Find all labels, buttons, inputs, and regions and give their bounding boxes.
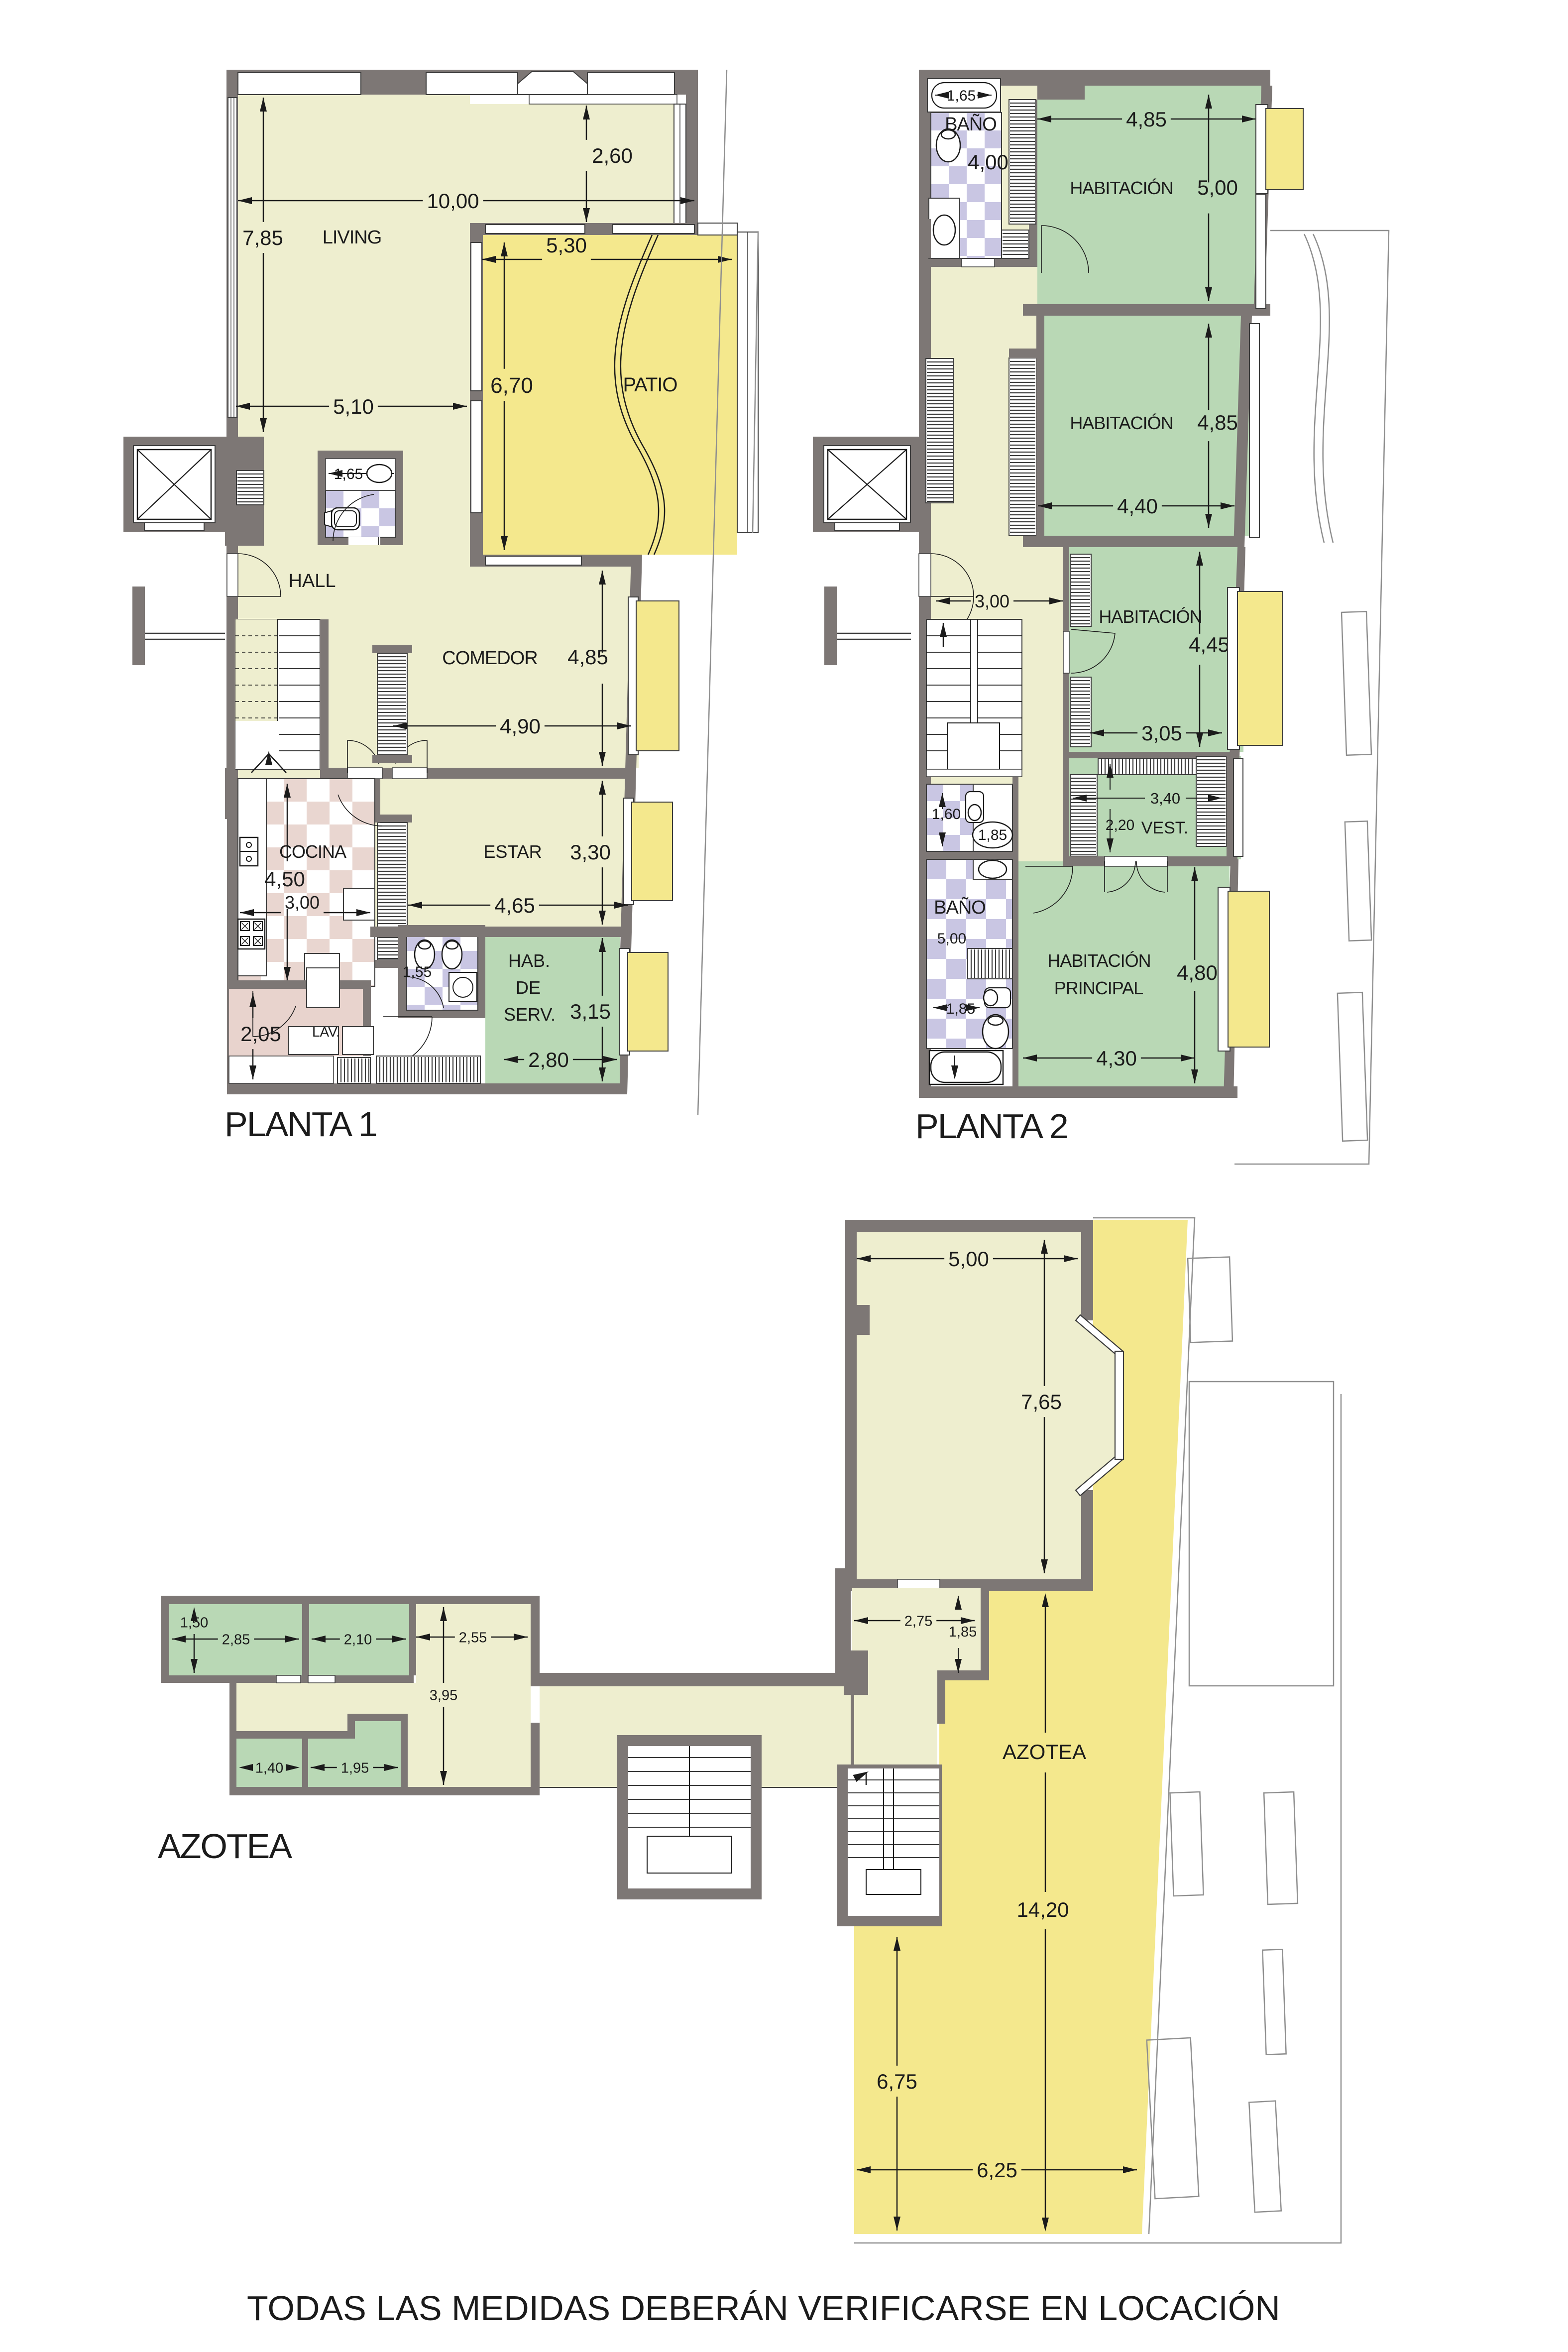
svg-text:10,00: 10,00 [427, 189, 479, 213]
svg-text:3,95: 3,95 [430, 1687, 457, 1703]
svg-text:COMEDOR: COMEDOR [442, 648, 537, 669]
svg-text:1,60: 1,60 [932, 806, 961, 823]
svg-text:2,55: 2,55 [459, 1630, 487, 1646]
svg-text:VEST.: VEST. [1141, 819, 1188, 837]
svg-text:3,00: 3,00 [285, 892, 320, 913]
svg-text:2,85: 2,85 [222, 1632, 250, 1647]
svg-text:1,50: 1,50 [180, 1615, 208, 1631]
svg-text:4,85: 4,85 [1197, 411, 1238, 434]
svg-text:4,80: 4,80 [1177, 961, 1218, 984]
svg-text:HAB.: HAB. [508, 950, 550, 971]
svg-text:AZOTEA: AZOTEA [158, 1827, 292, 1866]
svg-text:PLANTA 2: PLANTA 2 [915, 1107, 1068, 1146]
svg-text:BAÑO: BAÑO [945, 114, 997, 135]
svg-text:TODAS LAS MEDIDAS DEBERÁN VERI: TODAS LAS MEDIDAS DEBERÁN VERIFICARSE EN… [247, 2289, 1280, 2328]
svg-text:3,30: 3,30 [570, 840, 611, 864]
svg-text:6,70: 6,70 [490, 373, 533, 398]
svg-text:7,85: 7,85 [242, 226, 283, 249]
svg-text:6,25: 6,25 [977, 2158, 1017, 2182]
svg-text:2,75: 2,75 [904, 1613, 932, 1629]
svg-text:HABITACIÓN: HABITACIÓN [1099, 606, 1202, 627]
svg-text:HALL: HALL [288, 571, 336, 591]
svg-text:3,05: 3,05 [1141, 721, 1182, 745]
svg-text:4,45: 4,45 [1189, 633, 1230, 656]
svg-text:DE: DE [516, 977, 541, 998]
svg-text:5,10: 5,10 [333, 395, 374, 418]
svg-text:6,75: 6,75 [877, 2070, 917, 2093]
svg-text:1,85: 1,85 [949, 1624, 977, 1640]
svg-text:1,95: 1,95 [341, 1760, 369, 1776]
svg-text:4,00: 4,00 [968, 150, 1008, 174]
svg-text:4,90: 4,90 [500, 714, 541, 738]
svg-text:PRINCIPAL: PRINCIPAL [1054, 978, 1143, 998]
svg-text:SERV.: SERV. [504, 1004, 556, 1025]
svg-text:LAV.: LAV. [312, 1024, 340, 1040]
svg-text:PLANTA 1: PLANTA 1 [224, 1105, 377, 1144]
svg-text:4,65: 4,65 [494, 894, 535, 917]
svg-text:14,20: 14,20 [1016, 1898, 1069, 1921]
svg-text:3,15: 3,15 [570, 1000, 611, 1023]
svg-text:7,65: 7,65 [1021, 1390, 1062, 1413]
svg-text:1,40: 1,40 [255, 1760, 283, 1776]
svg-text:PATIO: PATIO [623, 374, 677, 396]
svg-text:HABITACIÓN: HABITACIÓN [1070, 178, 1173, 198]
svg-text:1,65: 1,65 [334, 466, 363, 482]
svg-text:3,00: 3,00 [975, 591, 1009, 611]
svg-text:5,00: 5,00 [948, 1247, 989, 1271]
svg-text:2,80: 2,80 [528, 1048, 569, 1071]
svg-text:4,30: 4,30 [1096, 1047, 1137, 1070]
svg-text:ESTAR: ESTAR [483, 841, 542, 862]
svg-text:AZOTEA: AZOTEA [1003, 1740, 1086, 1764]
svg-text:2,05: 2,05 [240, 1022, 281, 1046]
svg-text:HABITACIÓN: HABITACIÓN [1070, 413, 1173, 433]
svg-text:2,10: 2,10 [344, 1632, 372, 1647]
svg-text:4,50: 4,50 [264, 867, 305, 891]
svg-text:COCINA: COCINA [279, 841, 346, 862]
svg-text:4,85: 4,85 [1126, 108, 1167, 131]
svg-text:5,00: 5,00 [937, 931, 966, 947]
svg-text:LIVING: LIVING [323, 227, 382, 248]
svg-text:HABITACIÓN: HABITACIÓN [1047, 950, 1150, 971]
svg-text:5,00: 5,00 [1197, 176, 1238, 199]
svg-text:5,30: 5,30 [546, 234, 587, 257]
svg-text:2,60: 2,60 [592, 144, 633, 167]
svg-text:4,40: 4,40 [1117, 494, 1158, 518]
svg-text:1,65: 1,65 [947, 88, 976, 104]
svg-text:3,40: 3,40 [1150, 790, 1180, 807]
svg-text:1,85: 1,85 [978, 827, 1007, 843]
svg-text:BAÑO: BAÑO [934, 897, 986, 918]
